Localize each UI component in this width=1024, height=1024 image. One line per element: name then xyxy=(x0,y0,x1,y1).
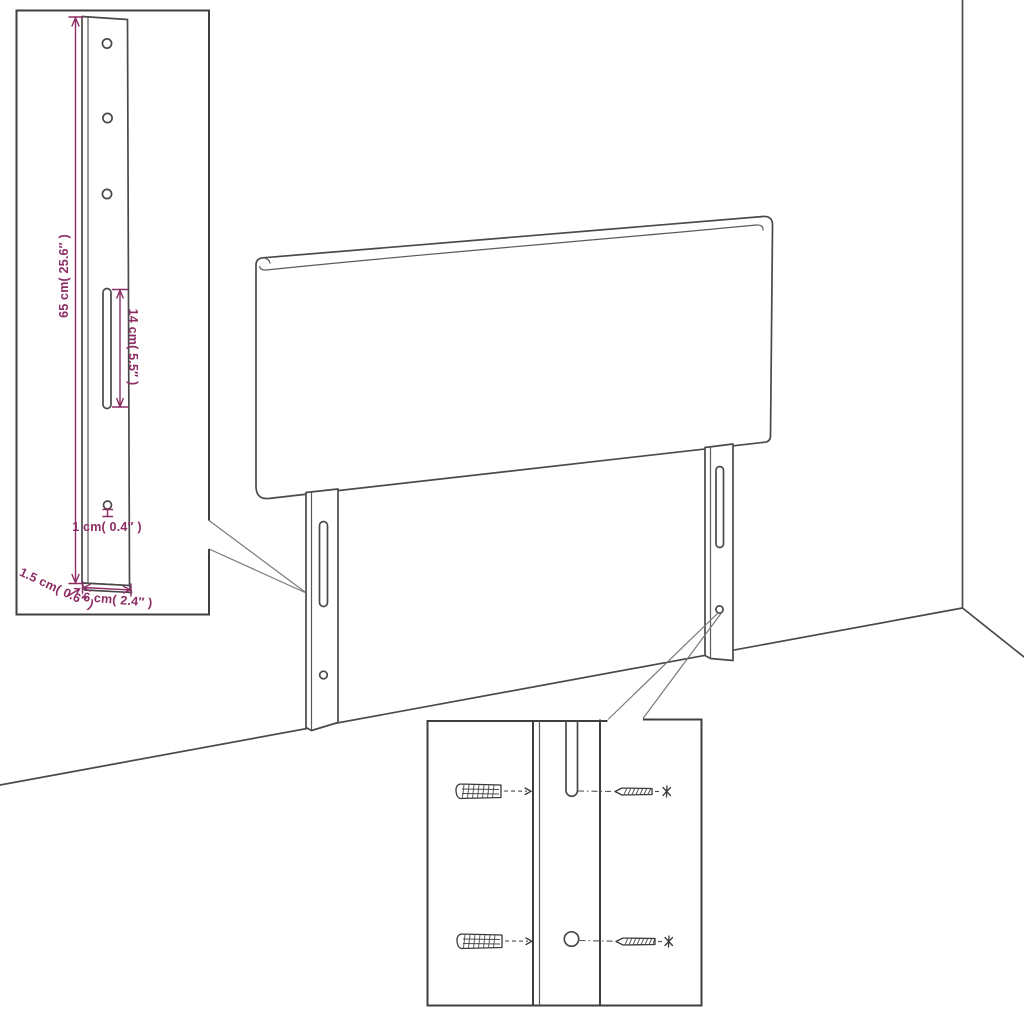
callout-line xyxy=(209,521,305,593)
headboard-panel xyxy=(256,216,773,498)
bracket-detail-inset: 65 cm( 25.6″ ) 14 cm( 5.5″ ) 1 cm( 0.4″ … xyxy=(17,11,210,615)
headboard-left-leg xyxy=(306,489,338,731)
inset-background xyxy=(428,720,702,1006)
bracket-front-face xyxy=(82,17,130,586)
callout-lines-bracket-inset xyxy=(209,521,305,593)
guide-line-bottom xyxy=(580,941,615,942)
dim-label-bracket-height: 65 cm( 25.6″ ) xyxy=(57,234,71,318)
callout-lines-fixing-inset xyxy=(608,613,722,720)
callout-line xyxy=(608,613,719,720)
right-leg-outline xyxy=(705,444,733,661)
guide-line-top xyxy=(578,791,613,792)
dim-label-hole-diameter: 1 cm( 0.4″ ) xyxy=(72,520,142,534)
left-leg-outline xyxy=(306,489,338,731)
headboard-right-leg xyxy=(705,444,733,661)
callout-line xyxy=(643,614,721,719)
dim-label-slot-length: 14 cm( 5.5″ ) xyxy=(126,309,140,386)
fixing-detail-inset xyxy=(428,720,702,1006)
floor-line-right xyxy=(963,608,1024,657)
bracket-drawing xyxy=(82,17,132,593)
headboard-outline xyxy=(256,216,773,498)
diagram-canvas: 65 cm( 25.6″ ) 14 cm( 5.5″ ) 1 cm( 0.4″ … xyxy=(0,0,1024,1024)
product-diagram: 65 cm( 25.6″ ) 14 cm( 5.5″ ) 1 cm( 0.4″ … xyxy=(0,0,1024,1024)
